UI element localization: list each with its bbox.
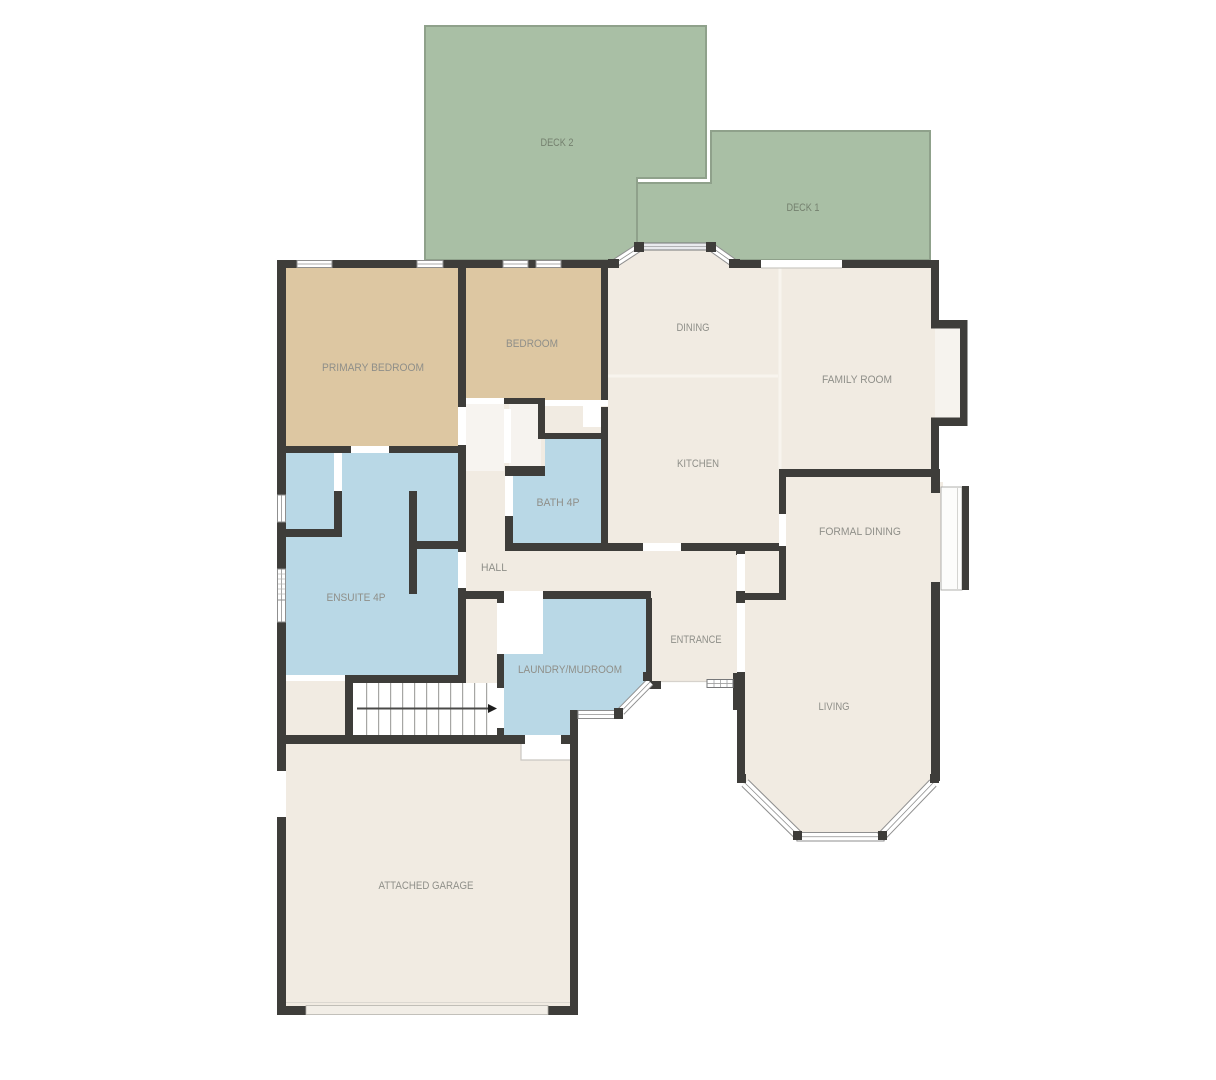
svg-text:KITCHEN: KITCHEN — [677, 458, 719, 470]
svg-text:DINING: DINING — [677, 322, 710, 334]
svg-text:PRIMARY BEDROOM: PRIMARY BEDROOM — [322, 362, 424, 374]
svg-text:ATTACHED GARAGE: ATTACHED GARAGE — [379, 880, 474, 892]
svg-text:ENSUITE 4P: ENSUITE 4P — [327, 592, 386, 604]
svg-text:DECK 2: DECK 2 — [541, 137, 574, 149]
svg-text:LIVING: LIVING — [819, 701, 850, 713]
svg-text:LAUNDRY/MUDROOM: LAUNDRY/MUDROOM — [518, 664, 622, 676]
svg-text:BEDROOM: BEDROOM — [506, 338, 558, 350]
svg-text:BATH 4P: BATH 4P — [537, 497, 580, 509]
svg-text:DECK 1: DECK 1 — [787, 202, 820, 214]
svg-text:FORMAL DINING: FORMAL DINING — [819, 526, 901, 538]
svg-text:FAMILY ROOM: FAMILY ROOM — [822, 374, 892, 386]
svg-text:HALL: HALL — [481, 562, 507, 574]
svg-text:ENTRANCE: ENTRANCE — [671, 634, 722, 646]
